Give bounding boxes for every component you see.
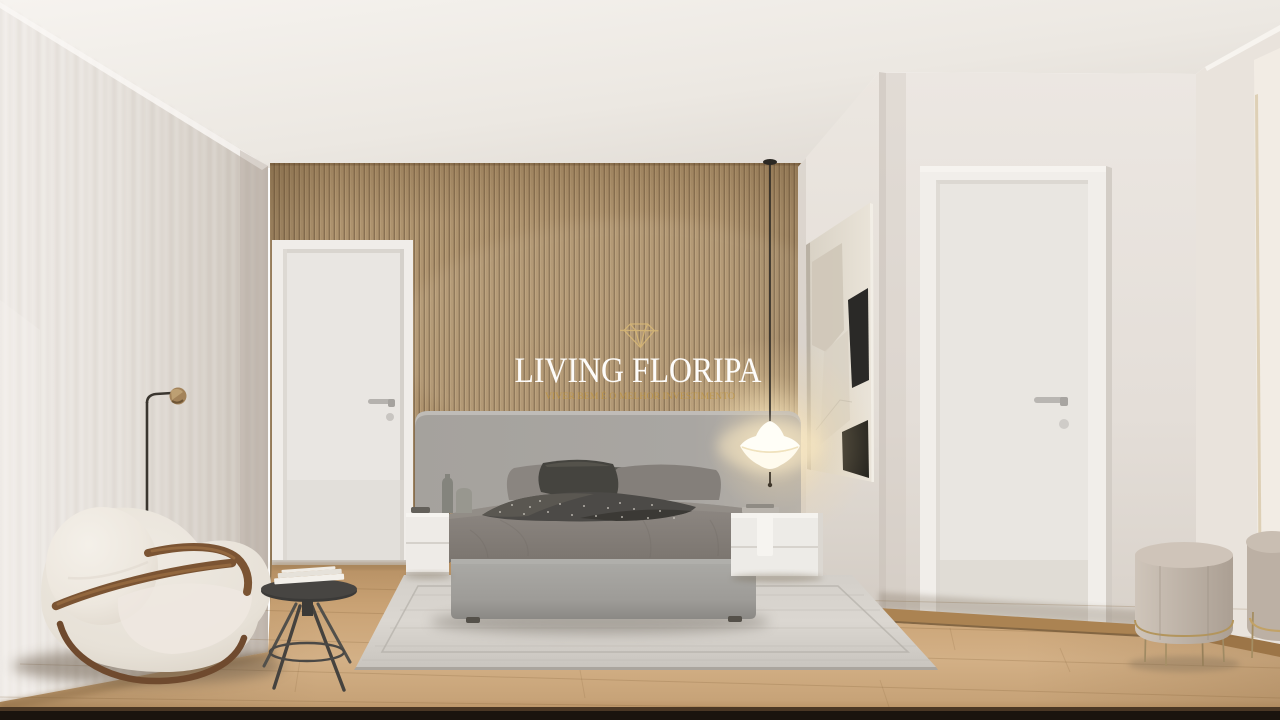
svg-text:LIVING FLORIPA: LIVING FLORIPA [515, 350, 762, 390]
svg-text:VIVER BEM É O MELHOR INVESTIME: VIVER BEM É O MELHOR INVESTIMENTO [545, 390, 735, 402]
